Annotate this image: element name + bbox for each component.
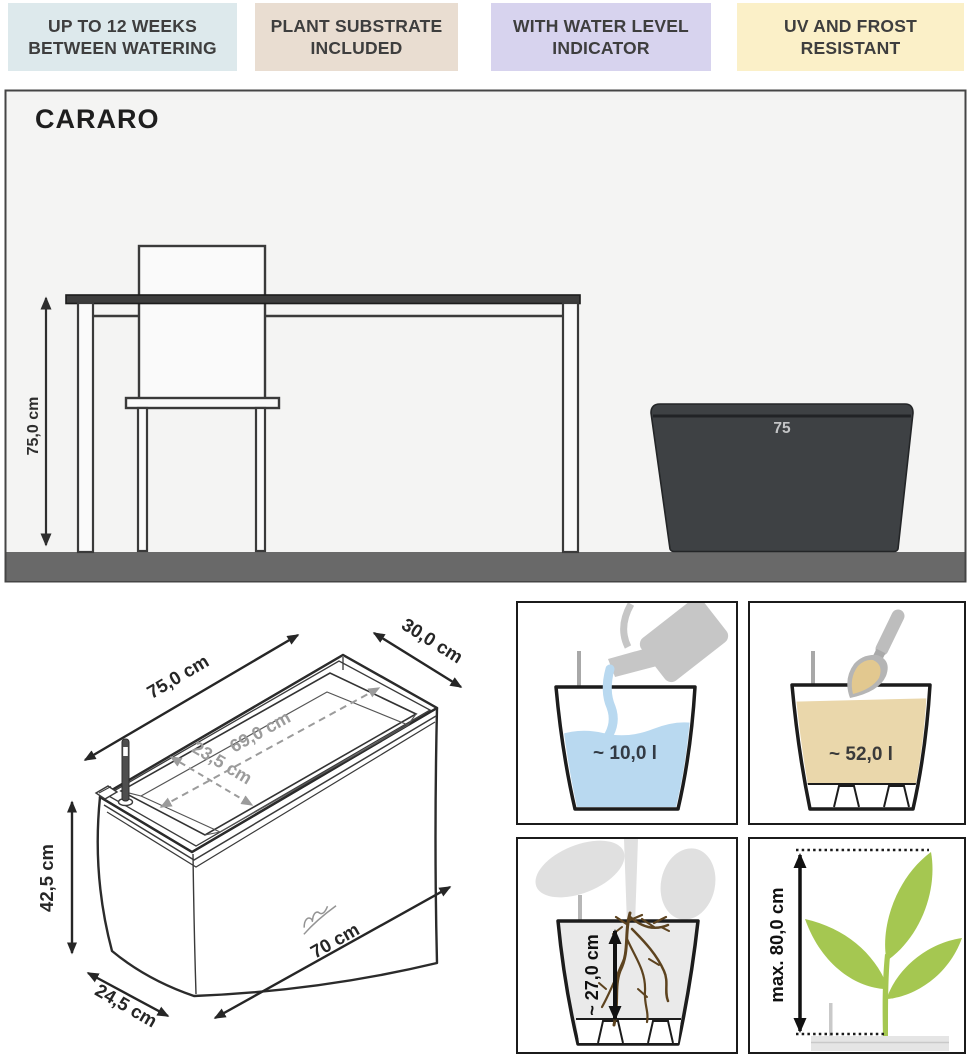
plant-height-label: max. 80,0 cm xyxy=(766,887,787,1002)
substrate-volume-illustration: ~ 52,0 l xyxy=(750,603,963,822)
badge-substrate-included: PLANT SUBSTRATE INCLUDED xyxy=(255,3,458,71)
height-dimension-label: 75,0 cm xyxy=(25,397,42,456)
substrate-volume-label: ~ 52,0 l xyxy=(829,744,893,765)
top-width-dimension: 30,0 cm xyxy=(374,614,467,687)
badge-watering-interval: UP TO 12 WEEKS BETWEEN WATERING xyxy=(8,3,237,71)
reservoir-foot xyxy=(834,786,859,807)
planter-silhouette: 75 xyxy=(651,404,913,552)
reservoir-foot xyxy=(648,1021,673,1043)
dimension-drawing: 69,0 cm 23,5 cm 75,0 cm 30,0 cm 42,5 cm … xyxy=(20,600,488,1055)
water-level-indicator-icon xyxy=(577,651,581,687)
cararo-planter-drawing xyxy=(96,655,437,996)
top-width-label: 30,0 cm xyxy=(398,614,467,668)
badge-line: RESISTANT xyxy=(737,37,964,59)
water-volume-label: ~ 10,0 l xyxy=(593,743,657,764)
water-volume-panel: ~ 10,0 l xyxy=(516,601,738,825)
pot-base xyxy=(811,1036,949,1051)
badge-uv-frost-resistant: UV AND FROST RESISTANT xyxy=(737,3,964,71)
plant-height-panel: max. 80,0 cm xyxy=(748,837,966,1054)
top-length-label: 75,0 cm xyxy=(143,650,212,703)
room-scale-illustration: CARARO 75 75,0 cm xyxy=(4,89,967,583)
badge-line: UV AND FROST xyxy=(737,15,964,37)
badge-line: INCLUDED xyxy=(255,37,458,59)
plant-silhouette-icon xyxy=(527,839,721,925)
badge-line: PLANT SUBSTRATE xyxy=(255,15,458,37)
water-level-indicator-icon xyxy=(829,1003,833,1036)
floor xyxy=(7,552,965,581)
badge-line: INDICATOR xyxy=(491,37,711,59)
badge-line: BETWEEN WATERING xyxy=(8,37,237,59)
plant-height-illustration: max. 80,0 cm xyxy=(750,839,963,1051)
badge-line: WITH WATER LEVEL xyxy=(491,15,711,37)
reservoir-foot xyxy=(884,786,909,807)
water-level-indicator-icon xyxy=(578,895,582,923)
substrate-volume-panel: ~ 52,0 l xyxy=(748,601,966,825)
badge-water-level-indicator: WITH WATER LEVEL INDICATOR xyxy=(491,3,711,71)
planter-size-label: 75 xyxy=(773,420,791,437)
product-title: CARARO xyxy=(35,104,160,134)
water-volume-illustration: ~ 10,0 l xyxy=(518,603,735,822)
water-level-indicator-icon xyxy=(811,651,815,687)
base-width-dimension: 24,5 cm xyxy=(88,973,168,1031)
height-label: 42,5 cm xyxy=(36,844,57,912)
badge-line: UP TO 12 WEEKS xyxy=(8,15,237,37)
height-dimension: 42,5 cm xyxy=(36,802,72,953)
plant-icon xyxy=(805,852,962,1036)
reservoir-foot xyxy=(598,1021,623,1043)
root-depth-illustration: ~ 27,0 cm xyxy=(518,839,735,1051)
water-stream xyxy=(607,669,613,738)
root-depth-panel: ~ 27,0 cm xyxy=(516,837,738,1054)
watering-can-icon xyxy=(608,603,731,685)
root-depth-label: ~ 27,0 cm xyxy=(582,934,602,1016)
